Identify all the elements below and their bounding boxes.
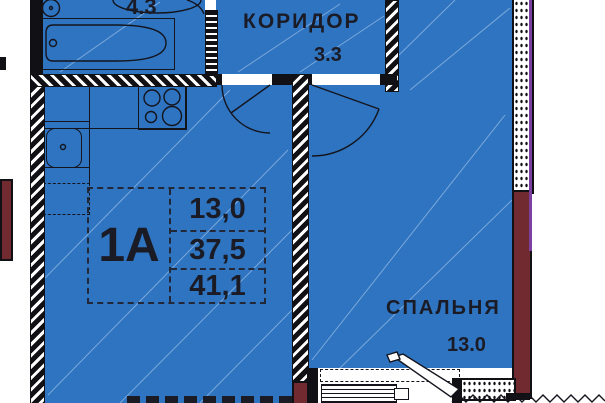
bathroom-kitchen-wall — [30, 74, 217, 87]
window-projection — [320, 369, 460, 382]
bedroom-bottom-wall-stub — [307, 368, 318, 403]
corridor-area-label: 3.3 — [314, 44, 342, 67]
left-wall-tick — [0, 57, 6, 70]
left-exterior-pier — [0, 179, 13, 261]
exterior-wall-bottom-cap — [506, 393, 530, 400]
bathroom-area-label: 4.3 — [126, 0, 157, 20]
clipped-text-fragment — [127, 396, 295, 403]
exterior-wall-outer-line — [529, 0, 532, 251]
unit-values: 13,0 37,5 41,1 — [171, 189, 264, 302]
bedroom-area-label: 13.0 — [447, 334, 486, 357]
unit-value-area: 37,5 — [171, 232, 264, 270]
bedroom-label: СПАЛЬНЯ — [386, 297, 501, 320]
room-bedroom-upper — [397, 0, 512, 85]
unit-value-living: 13,0 — [171, 189, 264, 232]
kitchen-counter-shelf-line-a — [43, 121, 89, 122]
corridor-label: КОРИДОР — [243, 10, 361, 34]
unit-card: 1A 13,0 37,5 41,1 — [87, 187, 266, 304]
radiator — [321, 384, 397, 403]
bedroom-door-opening — [312, 74, 380, 85]
left-wall-upper — [30, 0, 43, 74]
middle-wall — [292, 74, 309, 403]
bathroom-corridor-wall — [205, 10, 218, 76]
room-bedroom — [307, 85, 512, 368]
radiator-valve — [394, 388, 409, 400]
bathroom-door-opening — [205, 0, 216, 10]
bathtub — [40, 18, 175, 70]
kitchen-cabinet-projection — [43, 183, 90, 215]
unit-type-label: 1A — [89, 189, 171, 302]
floor-plan: 4.3 КОРИДОР 3.3 СПАЛЬНЯ 13.0 1A 13,0 37,… — [0, 0, 605, 403]
stove — [138, 85, 187, 130]
unit-value-total: 41,1 — [171, 270, 264, 302]
living-room-door-opening — [222, 74, 272, 85]
left-wall — [30, 74, 45, 403]
kitchen-sink — [46, 128, 82, 168]
